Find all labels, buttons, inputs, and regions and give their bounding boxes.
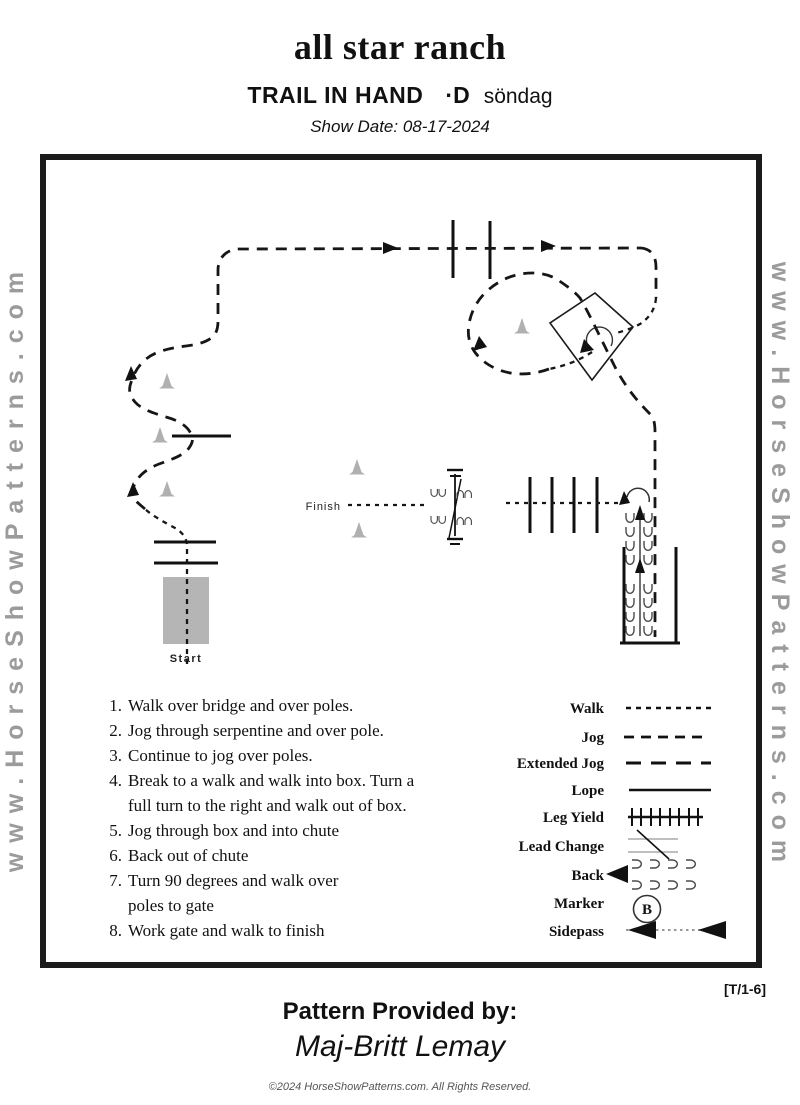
instruction-text: Jog through box and into chute <box>128 821 339 840</box>
instruction-number: 6. <box>100 843 122 868</box>
instruction-item: 8. Work gate and walk to finish <box>100 918 490 943</box>
jog-serpentine-path <box>130 248 641 509</box>
pattern-sheet: all star ranch TRAIL IN HAND·Dsöndag Sho… <box>0 0 800 1105</box>
instruction-text: full turn to the right and walk out of b… <box>128 793 414 818</box>
legend-label-marker: Marker <box>554 896 604 912</box>
legend-label-lope: Lope <box>571 783 604 799</box>
instruction-item: 1. Walk over bridge and over poles. <box>100 693 490 718</box>
instruction-item: 4. Break to a walk and walk into box. Tu… <box>100 768 490 818</box>
instruction-number: 1. <box>100 693 122 718</box>
watermark-right: www.HorseShowPatterns.com <box>765 157 795 977</box>
start-label: Start <box>170 653 203 665</box>
instruction-text: poles to gate <box>128 893 338 918</box>
jog-loop-chute-path <box>468 273 655 637</box>
legend-leg-yield-symbol <box>628 808 703 826</box>
day-label: söndag <box>484 85 553 108</box>
instruction-number: 4. <box>100 768 122 818</box>
walk-poles-row <box>530 477 597 533</box>
division-code: ·D <box>445 82 469 108</box>
walk-into-box-path <box>616 298 656 333</box>
legend-label-extended-jog: Extended Jog <box>517 756 605 772</box>
ranch-title: all star ranch <box>0 26 800 68</box>
jog-right-corner-path <box>641 248 656 298</box>
legend-lead-change-symbol <box>628 830 678 859</box>
show-date: Show Date: 08-17-2024 <box>0 117 800 137</box>
class-line: TRAIL IN HAND·Dsöndag <box>0 82 800 109</box>
instruction-text: Break to a walk and walk into box. Turn … <box>128 771 414 790</box>
provider-name: Maj-Britt Lemay <box>0 1030 800 1064</box>
instruction-number: 3. <box>100 743 122 768</box>
instruction-text: Walk over bridge and over poles. <box>128 696 353 715</box>
instruction-text: Jog through serpentine and over pole. <box>128 721 384 740</box>
gate-symbol <box>431 470 471 544</box>
instruction-item: 5. Jog through box and into chute <box>100 818 490 843</box>
back-hoofprints <box>626 513 652 635</box>
instruction-list: 1. Walk over bridge and over poles. 2. J… <box>100 693 490 943</box>
legend: Walk Jog Extended Jog Lope Leg Yield <box>517 701 726 940</box>
legend-label-lead-change: Lead Change <box>519 839 605 855</box>
instruction-item: 7. Turn 90 degrees and walk overpoles to… <box>100 868 490 918</box>
legend-back-symbol <box>606 860 695 889</box>
instruction-item: 3. Continue to jog over poles. <box>100 743 490 768</box>
finish-label: Finish <box>306 501 341 513</box>
watermark-left: www.HorseShowPatterns.com <box>0 157 30 977</box>
provided-by-label: Pattern Provided by: <box>0 998 800 1026</box>
instruction-number: 8. <box>100 918 122 943</box>
class-name: TRAIL IN HAND <box>247 82 423 108</box>
instruction-item: 2. Jog through serpentine and over pole. <box>100 718 490 743</box>
instruction-number: 5. <box>100 818 122 843</box>
legend-label-walk: Walk <box>570 701 605 717</box>
legend-marker-symbol: B <box>634 896 661 923</box>
legend-label-jog: Jog <box>582 730 605 746</box>
legend-sidepass-symbol <box>626 921 726 939</box>
pattern-frame: Start Finish Walk Jog Extended Jog Lope … <box>40 154 762 968</box>
instruction-text: Turn 90 degrees and walk over <box>128 871 338 890</box>
instruction-number: 7. <box>100 868 122 918</box>
instruction-text: Back out of chute <box>128 846 248 865</box>
copyright-text: ©2024 HorseShowPatterns.com. All Rights … <box>0 1081 800 1093</box>
legend-label-back: Back <box>571 868 604 884</box>
instruction-item: 6. Back out of chute <box>100 843 490 868</box>
instruction-text: Continue to jog over poles. <box>128 746 313 765</box>
instruction-text: Work gate and walk to finish <box>128 921 324 940</box>
legend-label-leg-yield: Leg Yield <box>543 810 605 826</box>
walk-out-of-box-path <box>549 352 592 369</box>
instruction-number: 2. <box>100 718 122 743</box>
legend-label-sidepass: Sidepass <box>549 924 604 940</box>
legend-marker-letter: B <box>642 902 652 918</box>
pattern-code: [T/1-6] <box>446 981 766 997</box>
chute-turn-icon <box>619 488 649 505</box>
back-chute <box>620 547 680 643</box>
turn-box <box>550 293 633 380</box>
